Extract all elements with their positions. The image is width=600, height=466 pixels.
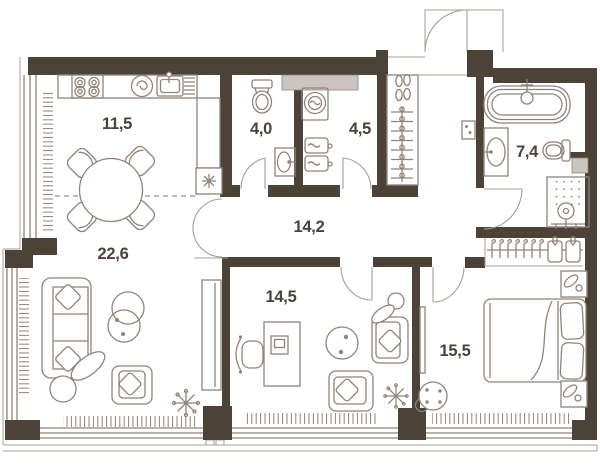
nesting-tables [108,292,144,342]
window-bottom-study [232,428,398,438]
study-door [341,267,372,300]
shirt-hanger-icon [548,237,562,262]
shower-icon [547,177,589,229]
shoe-shelf [396,75,410,101]
washing-machine-icon [302,88,328,120]
wc-door [241,158,265,189]
desk-chair [236,335,263,373]
dining-table [80,159,143,222]
towel-shelf [305,138,332,171]
living-wardrobe [202,280,221,390]
toilet-icon [543,140,570,161]
radiator [63,416,197,427]
armchair [112,366,152,404]
toilet-icon [252,80,272,113]
desk [264,322,300,386]
electrical-panel-icon [462,121,475,139]
pouf [416,382,448,412]
room-area-label-kitchen: 11,5 [102,115,132,133]
ventilation-shaft-small [572,158,588,173]
radiator [246,413,378,424]
cooker-hood-icon [132,76,153,97]
room-area-label-wc: 4,0 [250,120,272,138]
entry-door [425,10,467,52]
room-area-label-bedroom: 15,5 [440,342,471,360]
washbasin-icon [484,128,508,176]
radiator [19,278,29,396]
living-room-opening [193,199,228,258]
pillow [560,302,584,339]
coffee-table [326,327,358,359]
pillow [560,342,584,379]
floor-plan-svg: 11,5 22,6 4,0 4,5 14,2 7,4 14,5 15,5 [0,0,600,466]
bathtub-icon [484,79,570,123]
washbasin-icon [275,148,296,176]
room-area-label-hallway: 14,2 [294,218,325,236]
window-bottom-bedroom [426,428,572,438]
window-left-living [7,268,17,420]
fridge-icon [196,168,222,194]
bedroom-wardrobe [485,237,583,266]
armchair [372,317,408,363]
radiator [43,90,53,233]
bathroom-laundry-door [343,158,371,189]
room-area-label-study: 14,5 [266,288,297,306]
hanger-icons [492,240,543,258]
window-bottom-living [40,428,203,438]
radiator [432,413,570,424]
shirt-hanger-icon [566,237,580,262]
kitchen-sink-icon [157,72,183,96]
dish-rack-icon [184,78,195,94]
armchair [329,371,373,411]
bathroom-door [484,189,522,229]
room-area-label-bathroom: 7,4 [516,143,539,161]
mirror [420,307,425,373]
floor-plan: 11,5 22,6 4,0 4,5 14,2 7,4 14,5 15,5 [0,0,600,466]
plant-icon [384,384,408,408]
nightstand [561,271,587,297]
bed [484,299,586,382]
room-area-label-laundry: 4,5 [349,120,371,138]
stove-icon [72,75,103,98]
bedroom-door [433,267,464,302]
plant-icon [173,390,200,417]
entry-wardrobe [387,75,418,186]
room-area-label-living: 22,6 [98,245,129,263]
nightstand [561,381,587,407]
window-left-kitchen [24,75,36,238]
